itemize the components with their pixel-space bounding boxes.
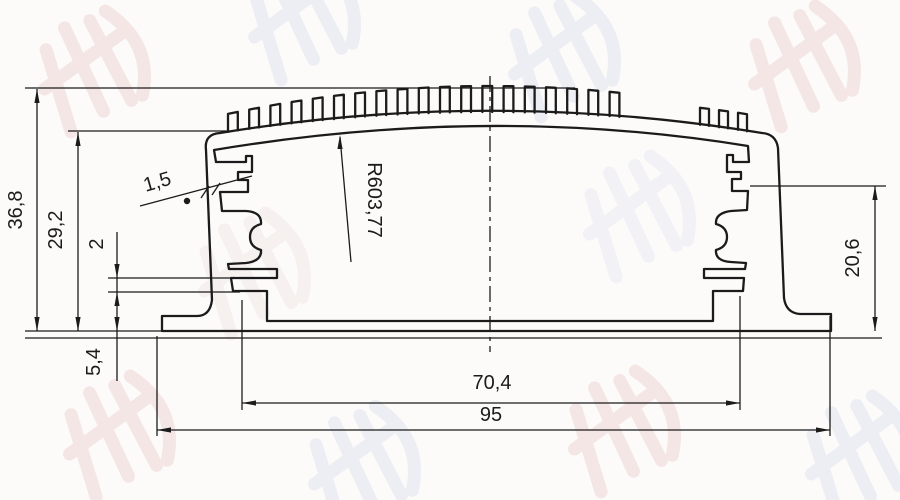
dim-wall-thickness-label: 1,5 [141,168,174,197]
drawing-canvas: 36,8 29,2 2 5,4 1,5 R603,77 20,6 70,4 95 [0,0,900,500]
wall-thickness-dot [184,198,190,204]
dim-overall-width-label: 95 [480,404,502,426]
arrowheads [34,89,877,433]
radius-leader-line [340,137,351,262]
extension-lines [25,88,886,436]
dim-inner-width-label: 70,4 [473,372,512,394]
dim-base-step-label: 5,4 [83,348,105,376]
watermark [25,0,900,500]
wall-thickness-tick [212,183,220,195]
dimension-lines [37,89,875,430]
technical-drawing: 36,8 29,2 2 5,4 1,5 R603,77 20,6 70,4 95 [0,0,900,500]
dim-overall-height-label: 36,8 [5,191,27,230]
dim-rib-slot-label: 2 [86,238,108,249]
dim-body-height-label: 29,2 [45,211,67,250]
dim-right-cavity-label: 20,6 [842,239,864,278]
dim-top-radius-label: R603,77 [363,162,385,238]
